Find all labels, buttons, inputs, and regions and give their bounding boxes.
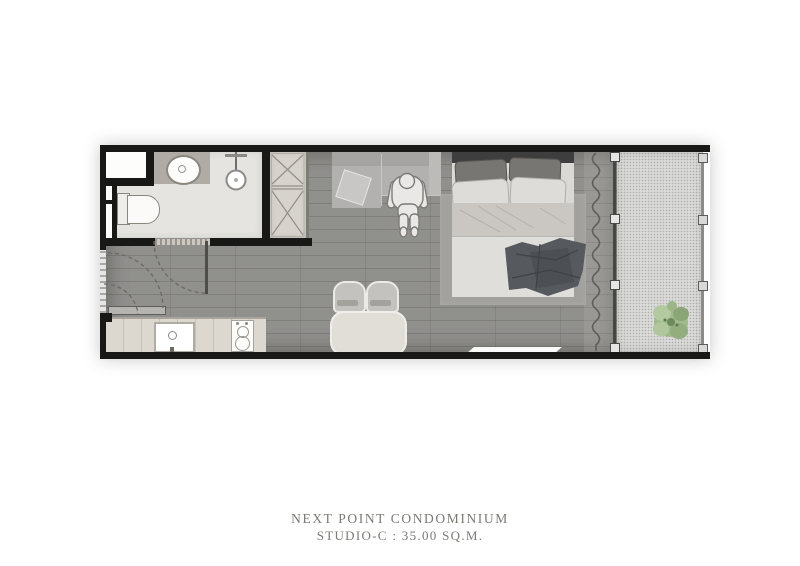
person-figure (387, 174, 429, 238)
shower-head-icon (225, 152, 247, 190)
line-art-layer (0, 0, 800, 566)
plant (653, 301, 689, 339)
caption-unit-area: STUDIO-C : 35.00 SQ.M. (0, 528, 800, 544)
floor-plan-page: NEXT POINT CONDOMINIUM STUDIO-C : 35.00 … (0, 0, 800, 566)
curtain (593, 153, 600, 351)
wardrobe-x-pattern (272, 154, 305, 237)
caption-project-name: NEXT POINT CONDOMINIUM (0, 511, 800, 527)
bed-dark-blanket (505, 238, 586, 296)
door-swing-arcs (104, 241, 206, 314)
duvet-creases (460, 206, 566, 232)
